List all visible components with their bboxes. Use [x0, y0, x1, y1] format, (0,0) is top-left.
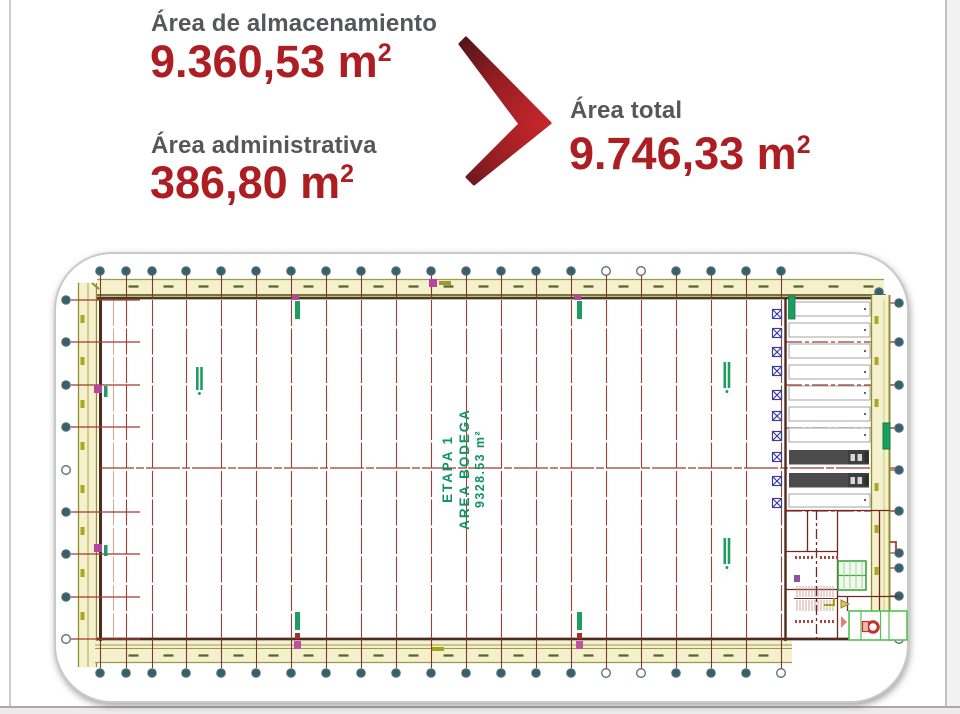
svg-text:AREA BODEGA: AREA BODEGA — [457, 408, 472, 530]
svg-text:ETAPA 1: ETAPA 1 — [440, 435, 455, 503]
svg-text:9328.53 m²: 9328.53 m² — [473, 430, 487, 508]
